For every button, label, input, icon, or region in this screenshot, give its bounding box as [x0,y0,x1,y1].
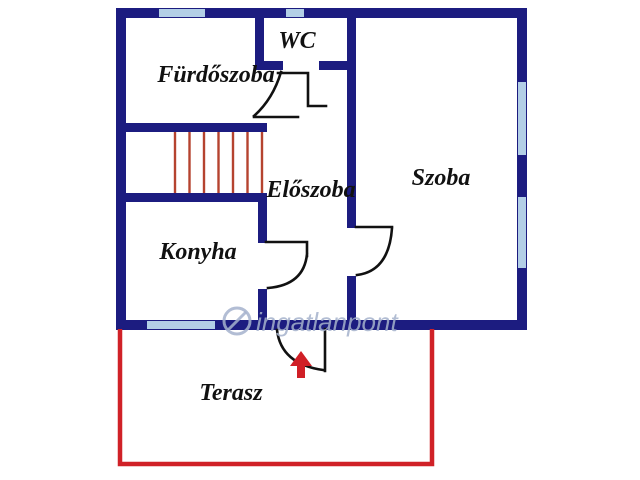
wc-door [278,73,326,106]
watermark: ingatlanpont [224,307,399,337]
label-room: Szoba [412,165,471,191]
room-door [356,227,392,275]
room-labels: Fürdőszoba WC Előszoba Szoba Konyha Tera… [156,28,470,406]
window-kitchen-bottom [147,321,215,329]
label-kitchen: Konyha [158,239,236,265]
window-room-right-lower [518,197,526,268]
wall-stairs-top [116,123,267,132]
floor-plan: Fürdőszoba WC Előszoba Szoba Konyha Tera… [0,0,640,480]
window-bathroom-top [159,9,205,17]
wall-kitchen-top [116,193,267,202]
label-terrace: Terasz [199,380,263,406]
window-room-right-upper [518,82,526,155]
label-hall: Előszoba [265,177,355,203]
terrace-outline [120,329,432,464]
label-bathroom: Fürdőszoba [156,62,274,88]
staircase [175,132,262,193]
wall-right [517,8,527,330]
window-wc-top [286,9,304,17]
watermark-text: ingatlanpont [256,307,399,337]
wall-left [116,8,126,330]
label-wc: WC [278,28,316,54]
floor-plan-svg: Fürdőszoba WC Előszoba Szoba Konyha Tera… [0,0,640,480]
entrance-arrow-icon [290,351,312,378]
kitchen-door [266,242,307,288]
